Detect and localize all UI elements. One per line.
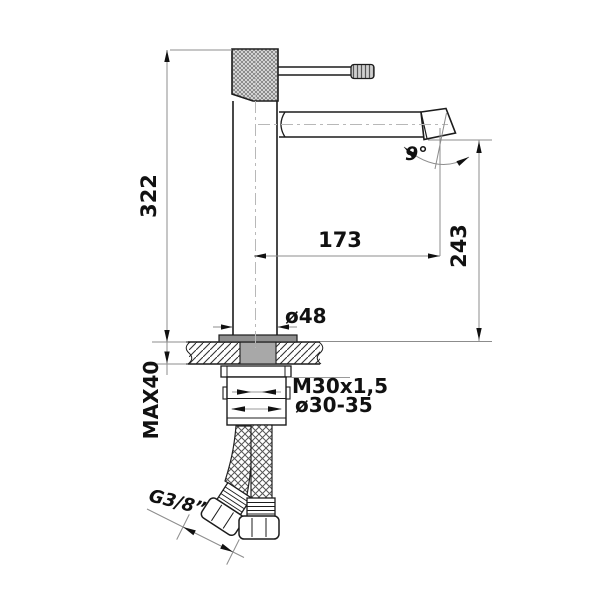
arrow-down [164, 352, 169, 364]
arrow-right [221, 324, 233, 329]
dim-deck-thickness: MAX40 [139, 352, 170, 440]
faucet-technical-drawing: 322 MAX40 173 243 ø48 [0, 0, 600, 600]
lever-rod [278, 67, 352, 75]
faucet-shank [240, 342, 276, 364]
hose-right [251, 425, 272, 499]
arc-arrow-right [456, 157, 469, 166]
dim-deck-thickness-label: MAX40 [139, 361, 163, 440]
faucet-body [232, 49, 456, 336]
arrow-down [476, 328, 481, 340]
dim-overall-height-label: 322 [137, 174, 161, 218]
arrow-right [428, 253, 440, 258]
arrow-up-left [183, 527, 196, 535]
arrow-up [476, 141, 481, 153]
arrow-up [164, 50, 169, 62]
mounting-hole-label: ø30-35 [295, 393, 373, 417]
dim-outlet-angle-label: 9° [405, 143, 428, 165]
baseplate [219, 335, 297, 342]
dim-overall-height: 322 [137, 50, 170, 375]
arrow-down-right [220, 544, 233, 552]
lever-grip [351, 65, 374, 79]
washer [221, 366, 291, 377]
dim-spout-reach-label: 173 [318, 228, 362, 252]
dim-base-diameter-label: ø48 [285, 304, 327, 328]
dim-spout-reach: 173 [254, 228, 440, 259]
arrow-down [164, 330, 169, 342]
technical-drawing-page: 322 MAX40 173 243 ø48 [0, 0, 600, 600]
dim-outlet-height: 243 [447, 140, 482, 341]
dim-outlet-height-label: 243 [447, 224, 471, 268]
hex-nut-right [239, 516, 279, 539]
hose-connection-label: G3/8” [147, 485, 209, 520]
supply-hoses [199, 425, 279, 539]
